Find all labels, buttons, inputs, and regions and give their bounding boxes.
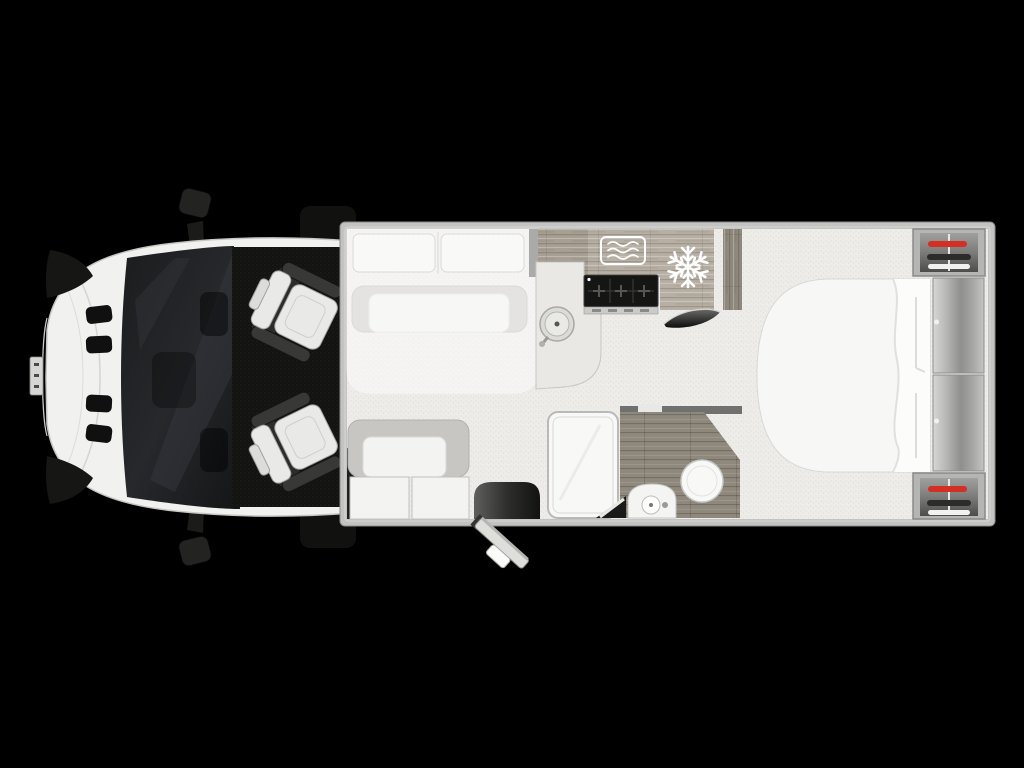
habitation-body — [340, 222, 995, 578]
washbasin-vanity — [628, 484, 676, 518]
white-hanger-icon — [928, 510, 970, 515]
hob — [584, 275, 658, 314]
toilet-icon — [681, 460, 723, 502]
headboard-cabinet-upper — [933, 278, 984, 373]
microwave-cabinet — [588, 229, 660, 277]
left-mirror-icon — [177, 187, 212, 246]
red-hanger-icon — [928, 241, 967, 247]
fridge-freezer — [660, 229, 714, 310]
tap-icon — [662, 502, 668, 508]
windshield — [121, 246, 240, 509]
side-sofa — [348, 420, 469, 519]
shower-tray — [548, 412, 618, 518]
island-bed — [757, 279, 930, 472]
headboard-cabinet-lower — [933, 375, 984, 471]
motorhome-floorplan-canvas — [0, 0, 1024, 768]
right-mirror-icon — [177, 508, 212, 567]
entrance-step — [474, 482, 540, 519]
dark-hanger-icon — [927, 500, 971, 506]
pillow-right — [441, 234, 524, 272]
wardrobe-offside — [913, 229, 985, 276]
drop-down-bed — [347, 229, 538, 393]
dark-hanger-icon — [927, 254, 971, 260]
red-hanger-icon — [928, 486, 967, 492]
wardrobe-nearside — [913, 473, 985, 519]
cab — [30, 187, 356, 567]
tall-cupboard — [723, 229, 742, 310]
floorplan-svg — [0, 0, 1024, 768]
white-hanger-icon — [928, 264, 970, 269]
number-plate — [30, 357, 43, 395]
pillow-left — [353, 234, 435, 272]
